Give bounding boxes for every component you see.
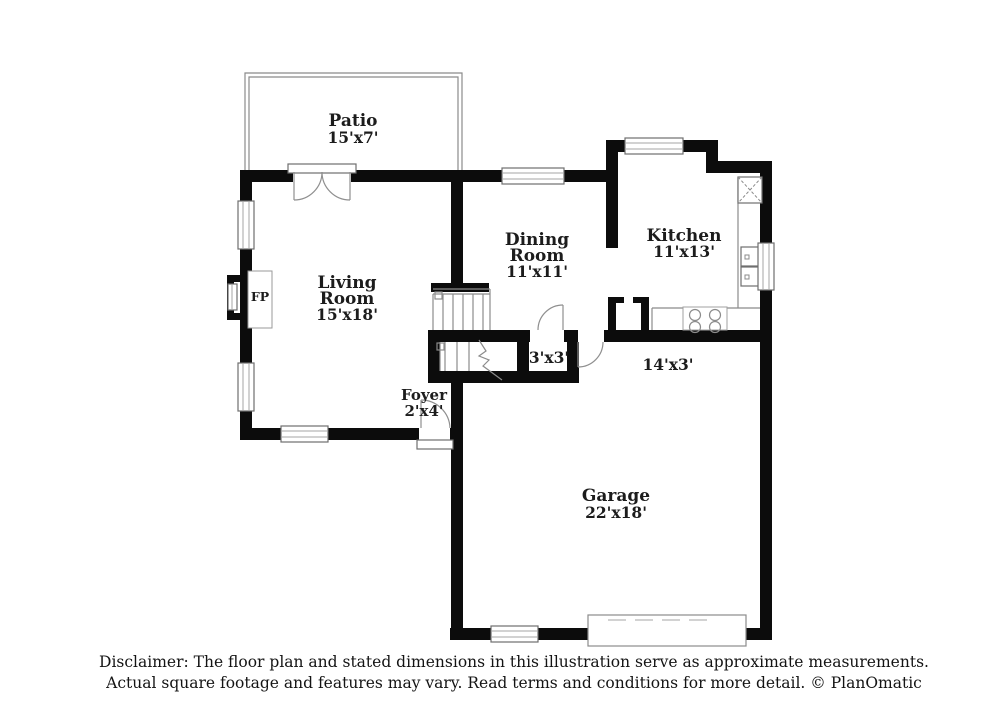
windows bbox=[238, 138, 774, 642]
wall-niche-foot-right bbox=[633, 297, 649, 303]
disclaimer-line1: Disclaimer: The floor plan and stated di… bbox=[99, 653, 929, 671]
disclaimer: Disclaimer: The floor plan and stated di… bbox=[99, 653, 929, 692]
closet-dims-label: 3'x3' bbox=[529, 348, 569, 367]
foyer-dims: 2'x4' bbox=[404, 402, 443, 420]
window-living-left-2 bbox=[238, 363, 254, 411]
patio-dims: 15'x7' bbox=[327, 128, 378, 147]
front-door-threshold bbox=[417, 440, 453, 449]
walls bbox=[227, 140, 772, 640]
living-room-dims: 15'x18' bbox=[316, 305, 378, 324]
staircase-upper bbox=[433, 289, 490, 330]
kitchen-dims: 11'x13' bbox=[653, 242, 715, 261]
window-garage-bottom bbox=[491, 626, 538, 642]
fireplace-label: FP bbox=[251, 289, 270, 304]
hallway-dims-label: 14'x3' bbox=[642, 355, 693, 374]
wall-dining-kitchen-divider bbox=[606, 140, 618, 248]
dining-room-dims: 11'x11' bbox=[506, 262, 568, 281]
wall-living-dining-divider bbox=[451, 170, 463, 291]
wall-niche-stub-left bbox=[608, 297, 616, 342]
floor-plan-drawing: FP Patio 15'x7' Living bbox=[0, 0, 1000, 727]
wall-right bbox=[760, 161, 772, 640]
garage-dims: 22'x18' bbox=[585, 503, 647, 522]
garage-door bbox=[588, 615, 746, 646]
window-living-left-1 bbox=[238, 201, 254, 249]
window-kitchen-right bbox=[758, 243, 774, 290]
disclaimer-line2: Actual square footage and features may v… bbox=[105, 674, 922, 692]
window-kitchen-top bbox=[625, 138, 683, 154]
wall-stair-cap bbox=[431, 283, 489, 292]
wall-closet-left bbox=[517, 330, 529, 383]
wall-stair-closet-bottom bbox=[428, 371, 578, 383]
wall-garage-left bbox=[451, 371, 463, 640]
floor-plan-page: FP Patio 15'x7' Living bbox=[0, 0, 1000, 727]
newel-post-upper bbox=[435, 292, 442, 299]
wall-niche-foot-left bbox=[608, 297, 624, 303]
refrigerator-icon bbox=[738, 177, 762, 203]
stove-icon bbox=[683, 307, 727, 333]
patio-double-door bbox=[288, 164, 356, 200]
closet-door bbox=[530, 305, 564, 342]
window-living-bottom bbox=[281, 426, 328, 442]
hallway-door bbox=[578, 330, 604, 367]
window-dining-top bbox=[502, 168, 564, 184]
wall-niche-stub-right bbox=[641, 297, 649, 342]
